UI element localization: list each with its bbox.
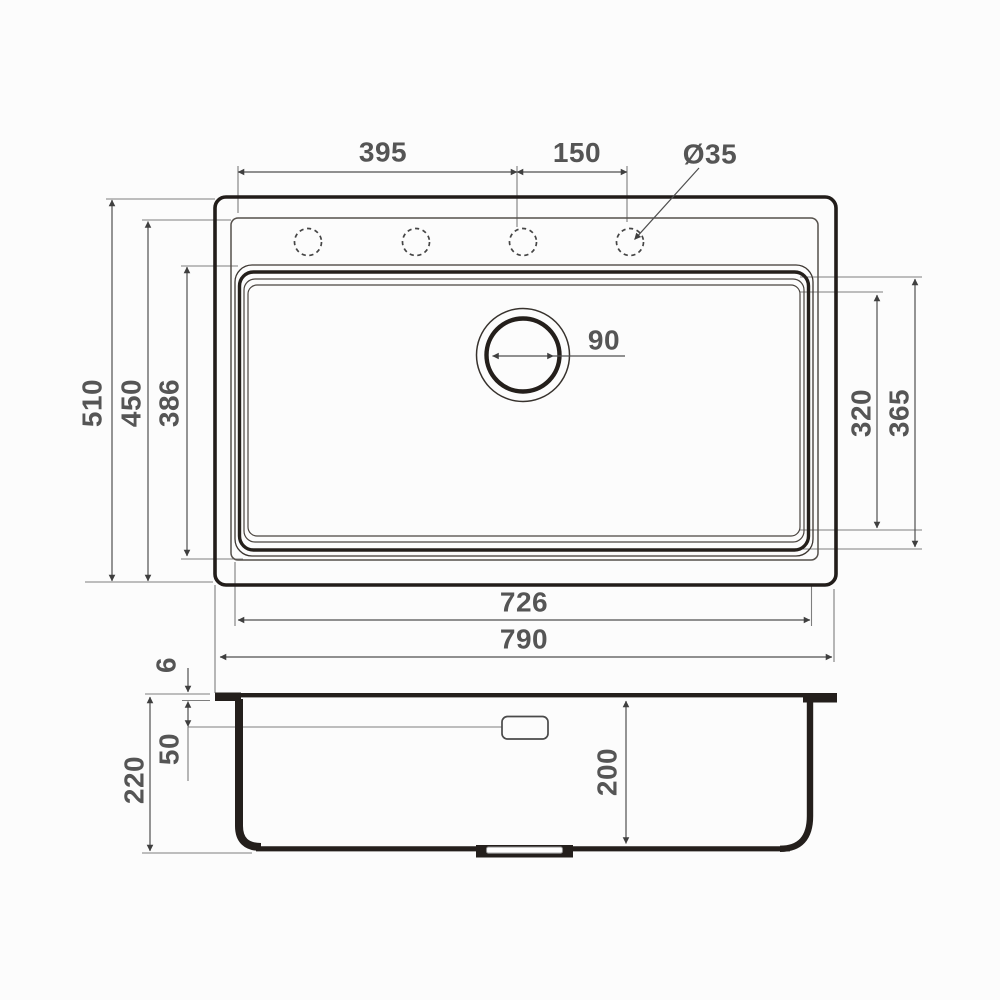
- dim-label-200: 200: [592, 748, 623, 796]
- dim-label-726: 726: [500, 587, 548, 618]
- dim-label-320: 320: [846, 389, 877, 437]
- dim-hole-leader: [635, 168, 700, 240]
- dim-label-220: 220: [119, 756, 150, 804]
- section-view: [215, 693, 837, 858]
- faucet-hole-1: [295, 229, 322, 256]
- sink-deck-outline: [231, 218, 818, 560]
- dim-label-drain-diameter: 90: [588, 325, 620, 356]
- faucet-hole-2: [403, 229, 430, 256]
- dim-label-510: 510: [77, 379, 108, 427]
- section-left-wall: [239, 699, 261, 847]
- bowl-outline-inner-2: [248, 285, 800, 536]
- dim-label-hole-diameter: Ø35: [683, 139, 737, 170]
- drain-boss-slot: [487, 847, 563, 853]
- dimension-labels: 395 150 Ø35 90 510 450 386 320 365 726 7…: [77, 137, 915, 805]
- sink-technical-drawing: 395 150 Ø35 90 510 450 386 320 365 726 7…: [0, 0, 1000, 1000]
- section-right-wall: [780, 699, 810, 849]
- section-rim: [215, 693, 837, 697]
- dim-label-386: 386: [154, 379, 185, 427]
- extension-lines: [85, 166, 922, 853]
- drain-outer-circle: [477, 309, 570, 402]
- drain-inner-circle: [487, 319, 560, 392]
- overflow-hole: [502, 717, 548, 740]
- faucet-hole-3: [510, 229, 537, 256]
- dim-label-790: 790: [500, 624, 548, 655]
- bowl-outline-main: [240, 272, 809, 550]
- dim-label-50: 50: [154, 733, 185, 765]
- dim-label-395: 395: [359, 137, 407, 168]
- dim-label-450: 450: [116, 379, 147, 427]
- dim-label-365: 365: [884, 389, 915, 437]
- top-view: [215, 197, 836, 585]
- drawing-canvas: 395 150 Ø35 90 510 450 386 320 365 726 7…: [0, 0, 1000, 1000]
- dim-label-150: 150: [553, 137, 601, 168]
- dim-label-6: 6: [151, 657, 182, 673]
- faucet-hole-4: [617, 229, 644, 256]
